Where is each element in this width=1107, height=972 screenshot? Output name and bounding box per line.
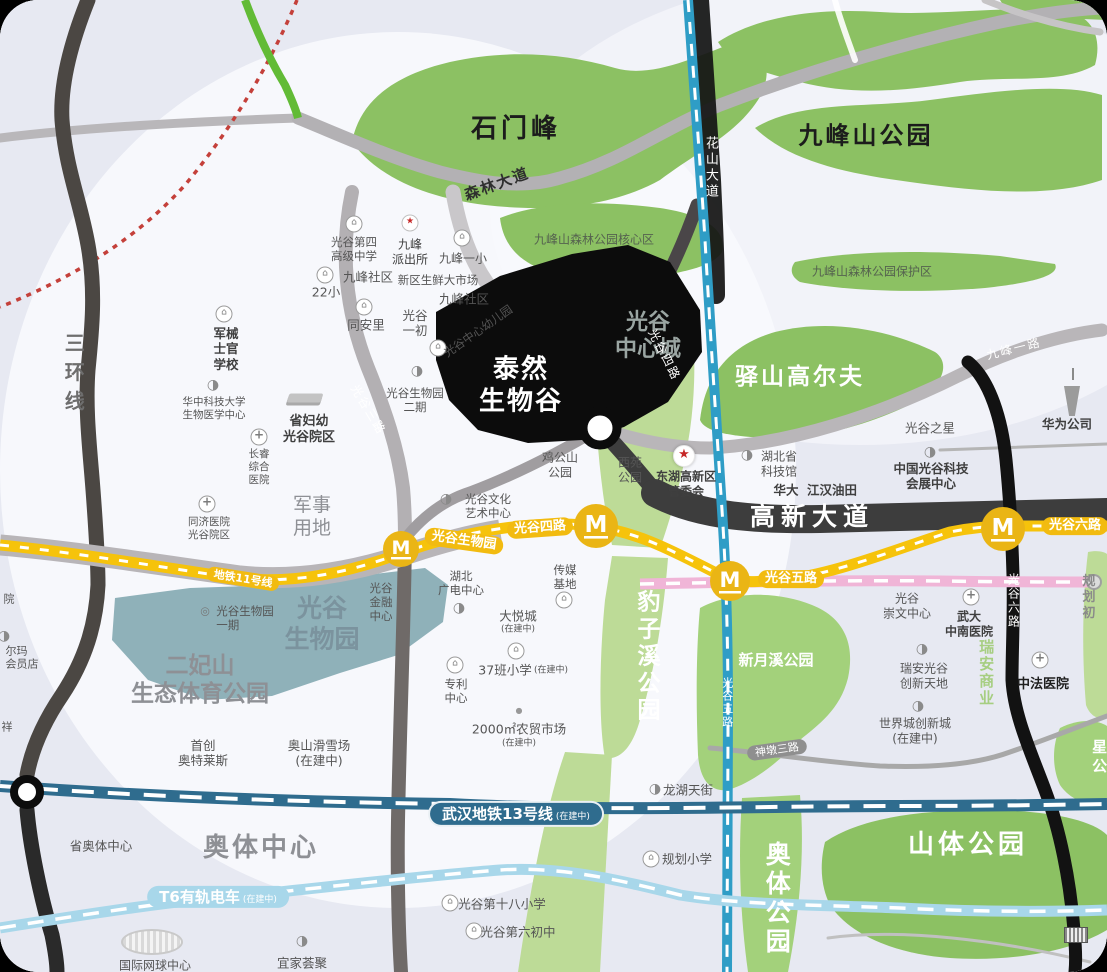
station-m-gg4: M [585, 512, 608, 538]
station-m-biopark: M [392, 537, 411, 559]
pink-line [640, 581, 1094, 584]
map-canvas: M M M M [0, 0, 1107, 972]
pink-line-endpoint [1087, 575, 1101, 589]
station-m-gg5: M [720, 568, 741, 592]
junction-circle-sw [14, 779, 40, 805]
location-map: M M M M 石门峰 九峰山公园 九峰山森林公园核心区 九峰山森林公园保护区 … [0, 0, 1107, 972]
junction-circle-main [583, 411, 617, 445]
station-m-gg6: M [992, 515, 1015, 541]
